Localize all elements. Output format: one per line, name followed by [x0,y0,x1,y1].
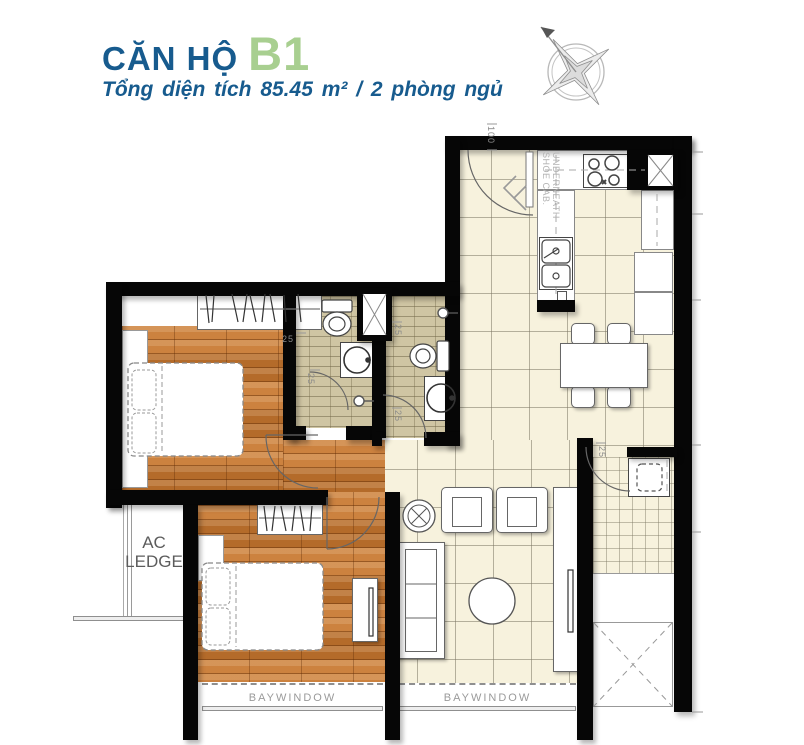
page-title: CĂN HỘ B1 [102,26,310,81]
wall [183,505,198,740]
wall [577,438,593,740]
ac-ledge-label: AC LEDGE [124,533,184,571]
fridge [641,190,674,250]
ac-ledge-sill [73,616,187,621]
dining-chair [607,323,631,345]
dimension-label: 25 [393,324,403,344]
baywindow-sill [202,706,383,711]
wall [106,282,460,296]
dimension-label: 25 [597,446,607,466]
tv-cabinet [352,578,378,642]
unit-subtitle: Tổng diện tích 85.45 m² / 2 phòng ngủ [102,78,503,102]
wall [674,136,692,712]
unit-code: B1 [248,26,310,81]
hallway-floor [283,440,385,495]
wall [445,136,692,150]
baywindow-label: BAYWINDOW [202,692,383,704]
headboard-panel [198,535,224,581]
dining-chair [607,386,631,408]
wall [385,492,400,740]
wall [627,447,677,457]
kitchen-cabinet [634,252,673,292]
wall [346,426,372,440]
sofa-seat [405,549,437,652]
armchair-seat [452,497,482,527]
dining-chair [571,386,595,408]
shaft-opening [648,155,673,186]
dining-chair [571,323,595,345]
shaft-opening [363,294,386,335]
headboard-panel [122,330,148,488]
baywindow-dash [399,683,576,685]
wall [537,300,575,312]
baywindow-label: BAYWINDOW [399,692,576,704]
armchair-seat [507,497,537,527]
baywindow-dash [202,683,383,685]
wall [106,284,122,508]
dining-table [560,343,648,388]
wall [106,490,328,505]
dimension-label: 25 [306,373,316,393]
utility-ledge [593,573,674,622]
wardrobe [257,502,323,535]
baywindow-sill [399,706,576,711]
shoe-cabinet-label: SHOE CAB. UNDERNEATH [541,152,561,274]
wall [424,432,460,446]
floor-plan-page: CĂN HỘ B1 Tổng diện tích 85.45 m² / 2 ph… [0,0,804,745]
bathroom-vanity [340,342,374,378]
wall [283,296,296,440]
dimension-label: 25 [393,410,403,430]
unit-title-prefix: CĂN HỘ [102,40,238,78]
dimension-label: 25 [282,334,294,344]
washing-machine [628,458,670,497]
compass-icon [528,14,623,118]
wall [372,432,382,446]
ac-platform [593,622,673,707]
wall [372,341,386,438]
dimension-label: 100 [486,126,496,150]
stove [583,154,630,188]
kitchen-cabinet [634,292,673,335]
wall [288,426,306,440]
